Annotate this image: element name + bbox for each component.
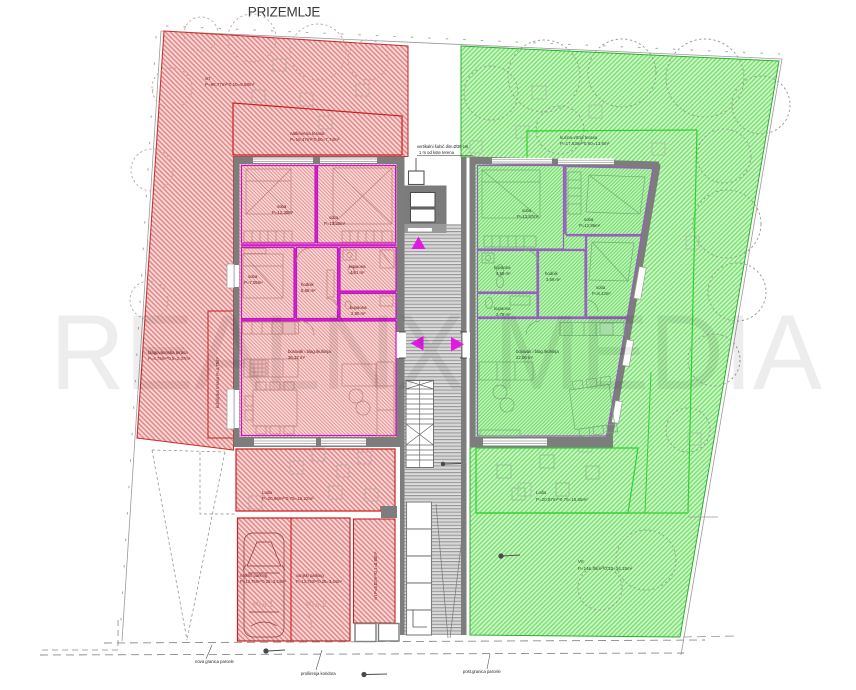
svg-text:P=18,47m²*0,50=7,74m²: P=18,47m²*0,50=7,74m²: [290, 137, 340, 142]
svg-text:P=12,30m²: P=12,30m²: [272, 210, 294, 215]
svg-text:hodnik: hodnik: [301, 282, 315, 287]
svg-text:post.granica parcele: post.granica parcele: [463, 669, 501, 674]
svg-text:soba: soba: [329, 215, 339, 220]
svg-text:P=17,63m²*0,90=13,6m²: P=17,63m²*0,90=13,6m²: [560, 141, 610, 146]
svg-text:P=12,86m²: P=12,86m²: [579, 223, 601, 228]
svg-text:kupaona: kupaona: [349, 264, 366, 269]
svg-text:soba: soba: [277, 204, 287, 209]
svg-text:1 m od kote terena: 1 m od kote terena: [419, 150, 455, 155]
svg-text:soba: soba: [522, 208, 532, 213]
svg-text:soba: soba: [596, 285, 606, 290]
svg-text:P=13,75m²*0,25=3,44m²: P=13,75m²*0,25=3,44m²: [296, 579, 342, 584]
svg-text:Lođa: Lođa: [262, 490, 273, 495]
svg-text:P=95,77m²*0,10=9,58m²: P=95,77m²*0,10=9,58m²: [205, 82, 255, 87]
svg-text:nova granica parcele: nova granica parcele: [195, 659, 235, 664]
svg-text:P=13,75m²*0,25=3,44m²: P=13,75m²*0,25=3,44m²: [240, 579, 286, 584]
svg-text:PM 2: PM 2: [305, 599, 327, 610]
svg-text:REALNX MEDIA: REALNX MEDIA: [50, 292, 823, 412]
svg-text:PM 1: PM 1: [252, 599, 274, 610]
svg-text:4,59 m²: 4,59 m²: [496, 271, 511, 276]
svg-text:kućna-vrtna terasa: kućna-vrtna terasa: [560, 135, 598, 140]
svg-text:kupaona: kupaona: [494, 265, 511, 270]
svg-text:vrt: vrt: [205, 76, 211, 81]
svg-text:natkriti parking: natkriti parking: [240, 573, 268, 578]
svg-text:P=141,46m²*0,10=14,15m²: P=141,46m²*0,10=14,15m²: [578, 566, 633, 571]
svg-text:vrt P=8,02m²*0,1=0,80m²: vrt P=8,02m²*0,1=0,80m²: [373, 551, 378, 600]
svg-text:PRIZEMLJE: PRIZEMLJE: [248, 5, 321, 20]
svg-text:Lođa: Lođa: [536, 490, 547, 495]
svg-text:P=13,20m²: P=13,20m²: [324, 221, 346, 226]
svg-text:hodnik: hodnik: [545, 271, 559, 276]
svg-text:vanjski parking: vanjski parking: [296, 573, 324, 578]
svg-text:P=20,87m²*0,75=15,65m²: P=20,87m²*0,75=15,65m²: [536, 497, 588, 502]
svg-text:3,69 m²: 3,69 m²: [546, 277, 561, 282]
svg-text:4,61 m²: 4,61 m²: [350, 270, 365, 275]
svg-text:P=13,87m²: P=13,87m²: [517, 214, 539, 219]
svg-text:P=7,05m²: P=7,05m²: [244, 280, 263, 285]
svg-text:soba: soba: [584, 217, 594, 222]
svg-text:soba: soba: [248, 274, 258, 279]
svg-text:P=20,96m²*0,75=15,22m²: P=20,96m²*0,75=15,22m²: [262, 496, 314, 501]
svg-text:vertikalni šahić dim.Ø38 cm: vertikalni šahić dim.Ø38 cm: [417, 144, 469, 149]
svg-text:proširenja koridora: proširenja koridora: [301, 671, 336, 676]
svg-text:Vrt: Vrt: [578, 559, 584, 564]
svg-text:natkrivena terasa: natkrivena terasa: [290, 131, 325, 136]
